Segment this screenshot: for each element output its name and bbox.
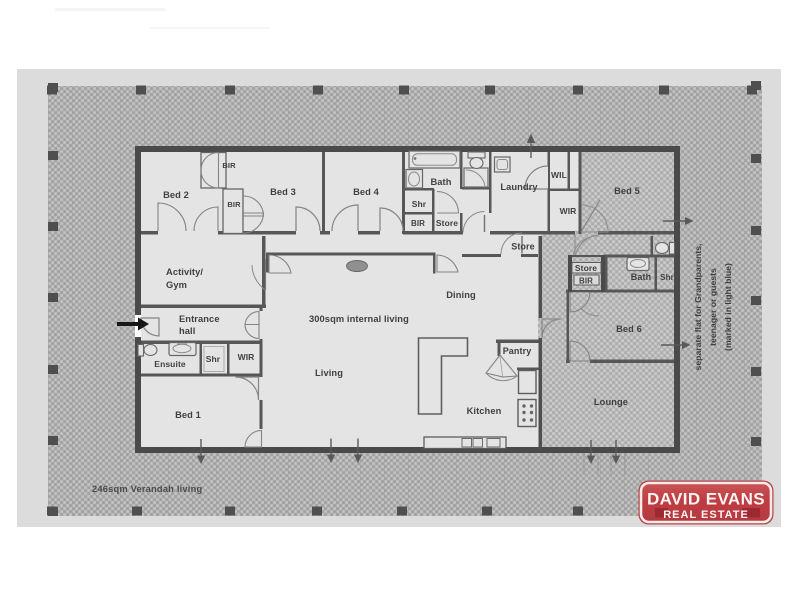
svg-text:Bath: Bath: [430, 177, 451, 187]
svg-text:Activity/: Activity/: [166, 267, 203, 277]
svg-text:Bed 2: Bed 2: [163, 190, 189, 200]
svg-text:Shr: Shr: [206, 354, 221, 364]
svg-text:Dining: Dining: [446, 290, 476, 300]
svg-text:Laundry: Laundry: [500, 182, 538, 192]
svg-text:BIR: BIR: [227, 200, 241, 209]
svg-text:Gym: Gym: [166, 280, 187, 290]
svg-text:WIR: WIR: [560, 206, 577, 216]
svg-text:Store: Store: [575, 263, 597, 273]
svg-text:BIR: BIR: [579, 277, 593, 286]
svg-text:(marked in light blue): (marked in light blue): [723, 263, 733, 351]
svg-text:REAL ESTATE: REAL ESTATE: [663, 509, 749, 521]
svg-text:Store: Store: [436, 218, 458, 228]
svg-text:BIR: BIR: [222, 161, 236, 170]
svg-text:BIR: BIR: [411, 219, 425, 228]
svg-text:WIL: WIL: [551, 170, 567, 180]
svg-text:Ensuite: Ensuite: [154, 359, 186, 369]
svg-text:Bed 1: Bed 1: [175, 410, 201, 420]
svg-text:Entrance: Entrance: [179, 314, 220, 324]
svg-text:Store: Store: [511, 242, 535, 252]
svg-text:DAVID EVANS: DAVID EVANS: [647, 490, 765, 509]
svg-text:246sqm Verandah living: 246sqm Verandah living: [92, 484, 202, 494]
svg-text:300sqm internal living: 300sqm internal living: [309, 314, 409, 324]
svg-text:Lounge: Lounge: [594, 397, 628, 407]
svg-text:Bed 6: Bed 6: [616, 324, 642, 334]
svg-text:Shr: Shr: [660, 273, 674, 282]
svg-text:Pantry: Pantry: [503, 346, 532, 356]
svg-text:Shr: Shr: [412, 199, 427, 209]
svg-text:Bath: Bath: [631, 272, 651, 282]
svg-text:hall: hall: [179, 326, 195, 336]
svg-text:separate flat for Grandparent: separate flat for Grandparents,: [693, 244, 703, 371]
svg-text:Bed 4: Bed 4: [353, 187, 380, 197]
svg-text:teenager or guests: teenager or guests: [708, 268, 718, 346]
svg-text:Bed 3: Bed 3: [270, 187, 296, 197]
svg-text:WIR: WIR: [238, 352, 255, 362]
svg-text:Bed 5: Bed 5: [614, 186, 640, 196]
svg-text:Kitchen: Kitchen: [467, 406, 502, 416]
svg-text:Living: Living: [315, 368, 343, 378]
